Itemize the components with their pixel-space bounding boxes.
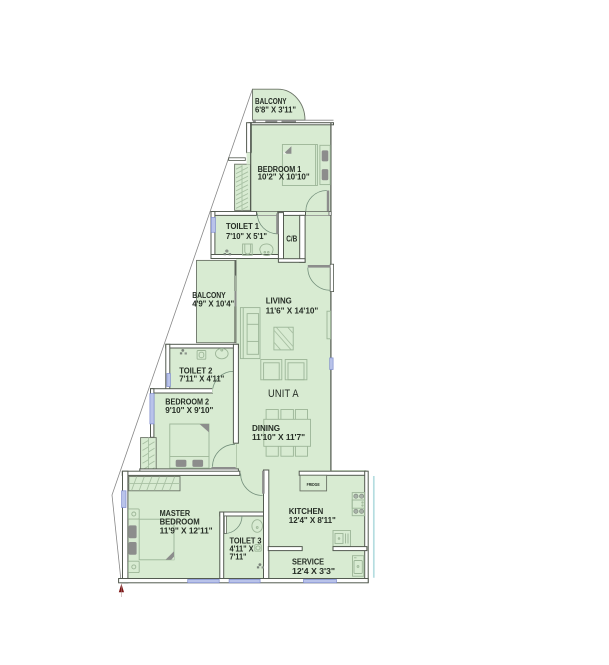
svg-text:7'11" X 4'11": 7'11" X 4'11" — [179, 375, 224, 384]
svg-text:10'2" X 10'10": 10'2" X 10'10" — [258, 173, 310, 182]
svg-text:9'10" X 9'10": 9'10" X 9'10" — [165, 406, 213, 415]
svg-text:11'10" X 11'7": 11'10" X 11'7" — [252, 433, 305, 442]
svg-text:11'9" X 12'11": 11'9" X 12'11" — [160, 526, 213, 535]
svg-text:FRIDGE: FRIDGE — [307, 482, 320, 487]
svg-text:C/B: C/B — [286, 234, 297, 243]
svg-text:7'10" X 5'1": 7'10" X 5'1" — [226, 232, 267, 241]
svg-text:12'4 X 3'3": 12'4 X 3'3" — [292, 567, 335, 576]
svg-text:LIVING: LIVING — [266, 297, 292, 306]
svg-text:12'4" X 8'11": 12'4" X 8'11" — [289, 516, 336, 525]
svg-text:TOILET 1: TOILET 1 — [226, 222, 260, 231]
svg-text:7'11": 7'11" — [230, 552, 247, 561]
svg-text:BALCONY: BALCONY — [192, 291, 226, 300]
svg-text:11'6" X 14'10": 11'6" X 14'10" — [266, 307, 319, 316]
svg-text:6'8" X 3'11": 6'8" X 3'11" — [255, 106, 296, 115]
svg-text:SERVICE: SERVICE — [292, 558, 324, 567]
svg-text:DINING: DINING — [252, 424, 280, 433]
svg-text:KITCHEN: KITCHEN — [289, 507, 324, 516]
svg-text:4'9" X 10'4": 4'9" X 10'4" — [192, 300, 234, 309]
svg-text:UNIT A: UNIT A — [268, 388, 299, 400]
